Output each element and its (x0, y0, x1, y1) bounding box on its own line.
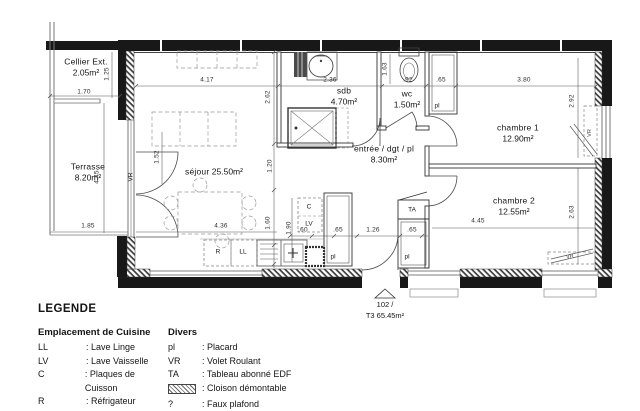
sink-icon (257, 240, 307, 266)
dim-label: .65 (333, 227, 343, 234)
legend-kitchen-heading: Emplacement de Cuisine (38, 327, 168, 338)
floor-plan-drawing (0, 0, 640, 300)
dim-label: 1.25 (104, 67, 111, 80)
placard-tag: pl (434, 103, 439, 110)
vr-tag: VR (587, 129, 593, 137)
legend-row: ? : Faux plafond (168, 398, 608, 411)
ta-tag: TA (408, 207, 416, 214)
legend-divers-heading: Divers (168, 327, 608, 338)
dim-label: .65 (436, 77, 446, 84)
dim-label: 4.45 (471, 218, 484, 225)
room-label-sdb: sdb 4.70m² (331, 85, 357, 106)
room-label-sejour: séjour 25.50m² (185, 167, 243, 178)
placard-tag: pl (330, 254, 335, 261)
dim-label: 2.63 (569, 205, 576, 218)
legend-row: LL : Lave Linge (38, 341, 168, 355)
fridge-tag: R (216, 249, 221, 256)
dim-label: 1.26 (366, 227, 379, 234)
vr-tag: VR (128, 172, 135, 181)
dim-label: 1.52 (154, 150, 161, 163)
dim-label: .92 (403, 77, 413, 84)
dim-label: 3.80 (517, 77, 530, 84)
dim-label: 4.45 (94, 170, 101, 183)
legend-kitchen-column: Emplacement de Cuisine LL : Lave Linge L… (38, 327, 168, 411)
entrance-arrow (375, 289, 395, 298)
room-label-chambre2: chambre 2 12.55m² (493, 195, 535, 216)
hob-tag: C (307, 204, 312, 211)
legend-row: C : Plaques de Cuisson (38, 368, 168, 395)
dim-label: 4.17 (200, 77, 213, 84)
dim-label: 1.90 (286, 221, 293, 234)
dim-label: .65 (407, 227, 417, 234)
legend-row: : Cloison démontable (168, 382, 608, 399)
dim-label: 1.60 (265, 216, 272, 229)
washer-tag: LL (239, 249, 246, 256)
legend-title: LEGENDE (38, 303, 608, 315)
placard-tag: pl (404, 254, 409, 261)
dishwasher-tag: LV (305, 221, 312, 228)
room-label-chambre1: chambre 1 12.90m² (497, 122, 539, 143)
room-label-entree: entrée / dgt / pl 8.30m² (354, 143, 414, 164)
dim-label: 1.20 (267, 159, 274, 172)
cloison-swatch (168, 384, 196, 394)
sofa-icon (152, 112, 236, 146)
room-label-wc: wc 1.50m² (394, 88, 420, 109)
terrace-walls (50, 22, 128, 235)
legend-row: TA : Tableau abonné EDF (168, 368, 608, 382)
legend-row: VR : Volet Roulant (168, 355, 608, 369)
windows (128, 106, 613, 297)
legend-row: pl : Placard (168, 341, 608, 355)
dim-label: 1.70 (77, 89, 90, 96)
dim-label: 1.85 (81, 223, 94, 230)
legend: LEGENDE Emplacement de Cuisine LL : Lave… (38, 303, 608, 411)
shower-icon (288, 108, 348, 148)
dim-label: 1.63 (382, 62, 389, 75)
legend-row: R : Réfrigateur (38, 395, 168, 409)
dining-table-icon (164, 178, 256, 248)
dim-label: 4.36 (214, 223, 227, 230)
dim-label: .60 (298, 227, 308, 234)
room-label-cellier: Cellier Ext. 2.05m² (64, 56, 108, 77)
dim-label: 2.92 (569, 94, 576, 107)
column-icon (306, 247, 324, 266)
dim-label: 2.62 (265, 90, 272, 103)
legend-row: LV : Lave Vaisselle (38, 355, 168, 369)
dim-label: 2.36 (323, 77, 336, 84)
floor-plan-page: Cellier Ext. 2.05m² Terrasse 8.20m² séjo… (0, 0, 640, 411)
doors (136, 112, 457, 270)
legend-divers-column: Divers pl : Placard VR : Volet Roulant T… (168, 327, 608, 411)
washbasin-icon (309, 55, 333, 77)
interior-walls (277, 52, 596, 268)
washing-machine-icon (294, 52, 307, 77)
